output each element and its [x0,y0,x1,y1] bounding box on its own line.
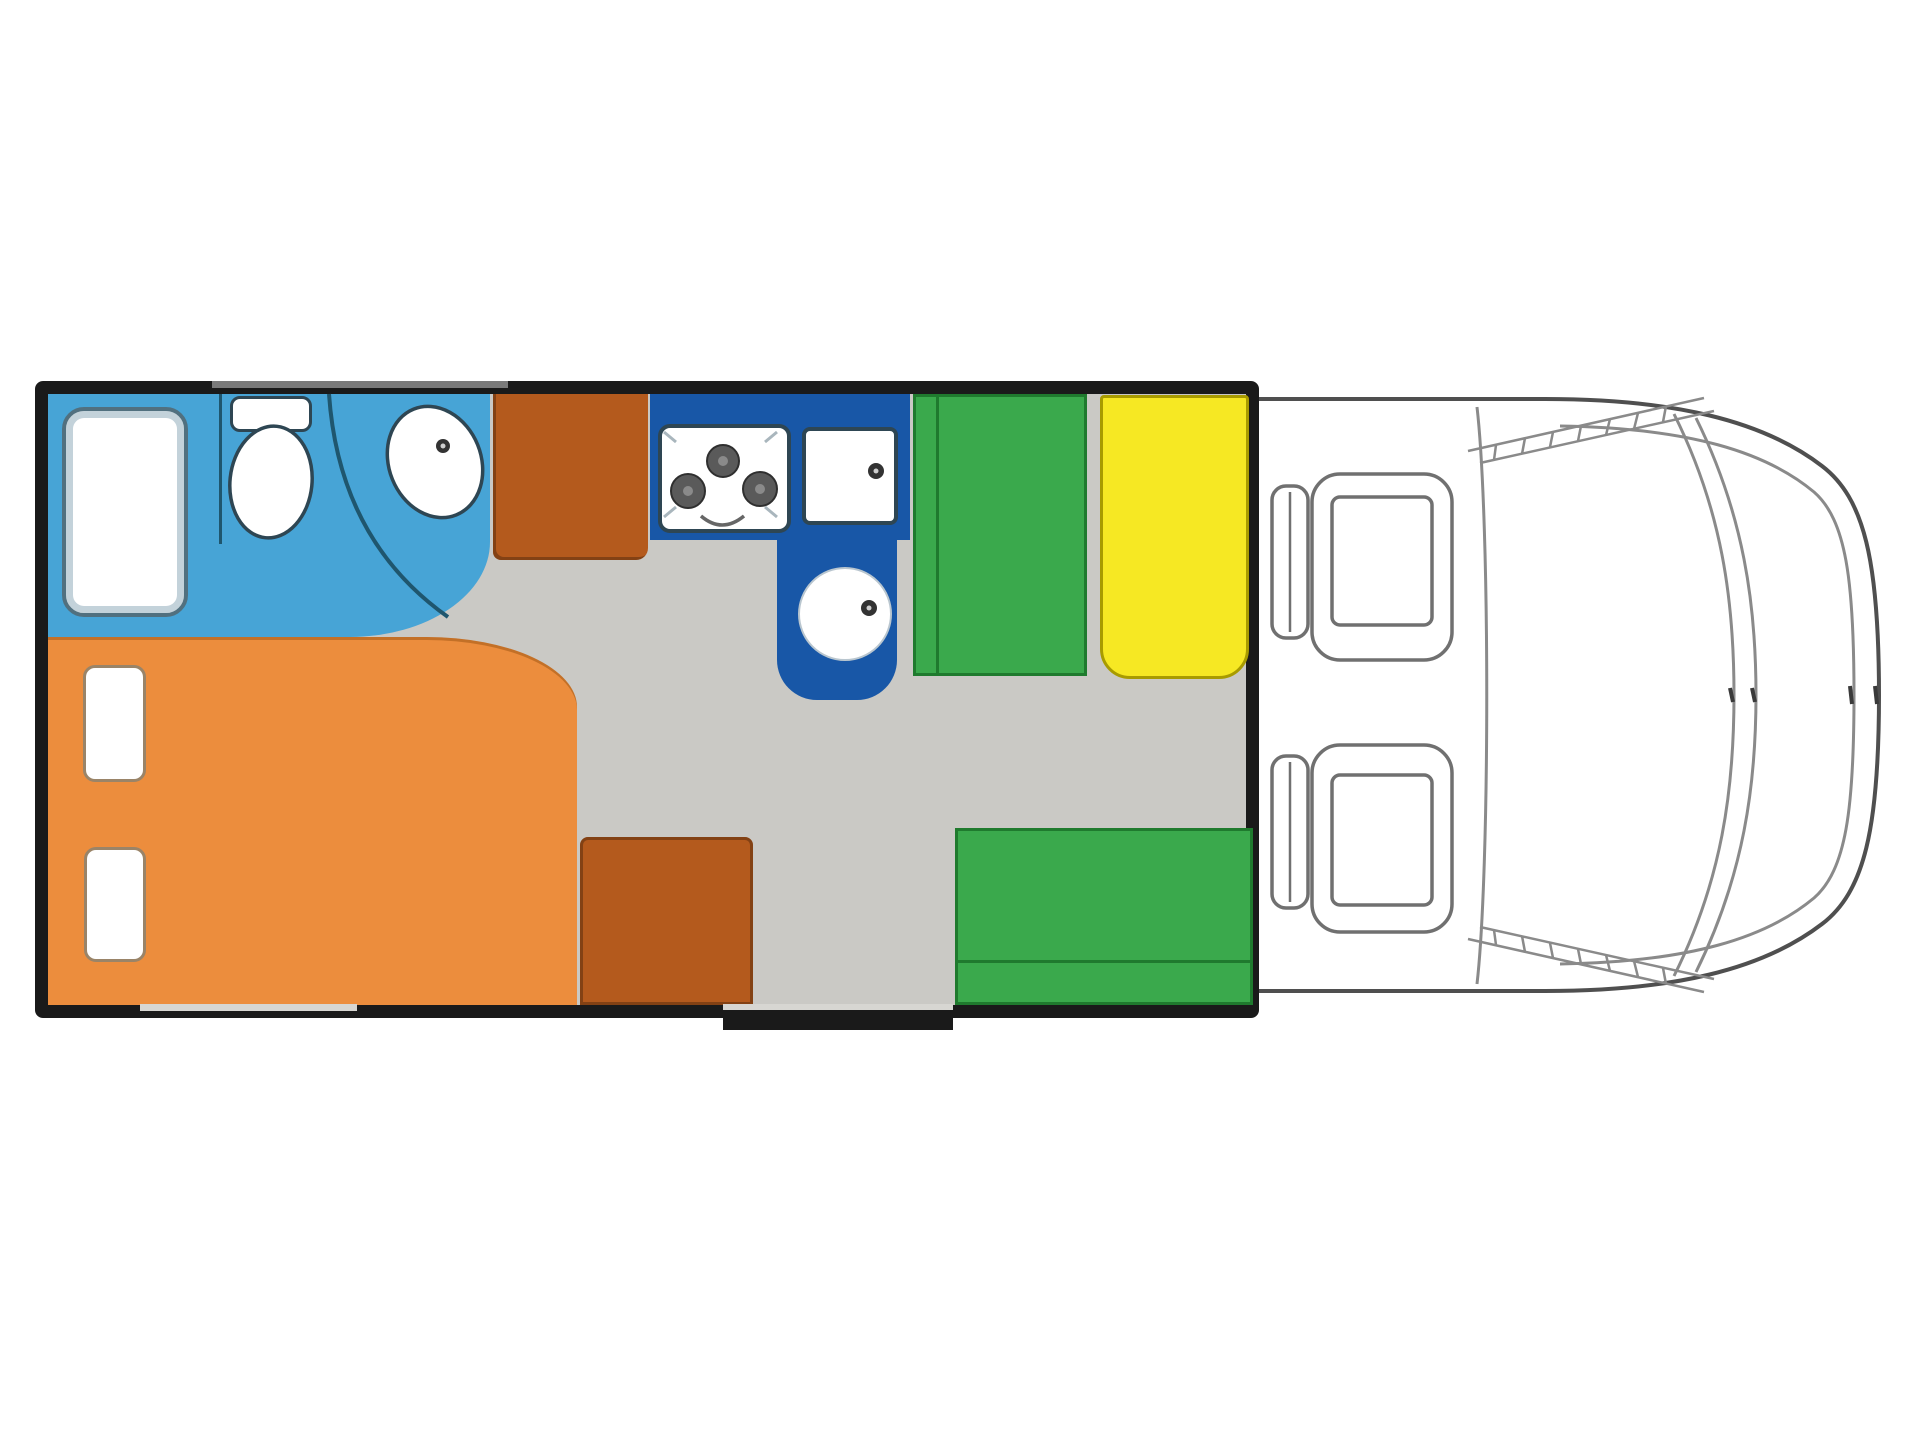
side-seat-yellow [1100,395,1249,679]
cab-seat-driver [1272,474,1452,660]
hood-line [1560,426,1854,964]
dinette-rear-bench [955,828,1253,1005]
stove-hob [658,424,791,533]
shower-tray [62,407,188,617]
entry-door-marking [723,1004,953,1010]
entry-door-step [723,1014,953,1030]
wardrobe-cabinet [493,394,648,560]
garage-hatch-marking [140,1004,357,1011]
rear-bench-backrest-line [955,960,1253,963]
front-bench-backrest-line [936,394,939,676]
kitchen-square-sink [802,427,898,525]
dashboard-line [1477,407,1487,984]
entry-cabinet [580,837,753,1005]
kitchen-round-sink [798,567,892,661]
pillow [83,665,146,782]
windshield-hatch-top [1468,398,1714,463]
windshield-line [1674,414,1734,976]
dinette-front-bench [913,394,1087,676]
windshield-hatch-bottom [1468,927,1714,992]
bathroom-window-marking [212,381,508,388]
windshield-line [1696,418,1756,972]
pillow [84,847,146,962]
cab-outline [1259,399,1879,991]
bathroom-partition [219,394,222,544]
floorplan-canvas [0,0,1920,1440]
cab-seat-passenger [1272,745,1452,932]
toilet-tank [230,396,312,432]
